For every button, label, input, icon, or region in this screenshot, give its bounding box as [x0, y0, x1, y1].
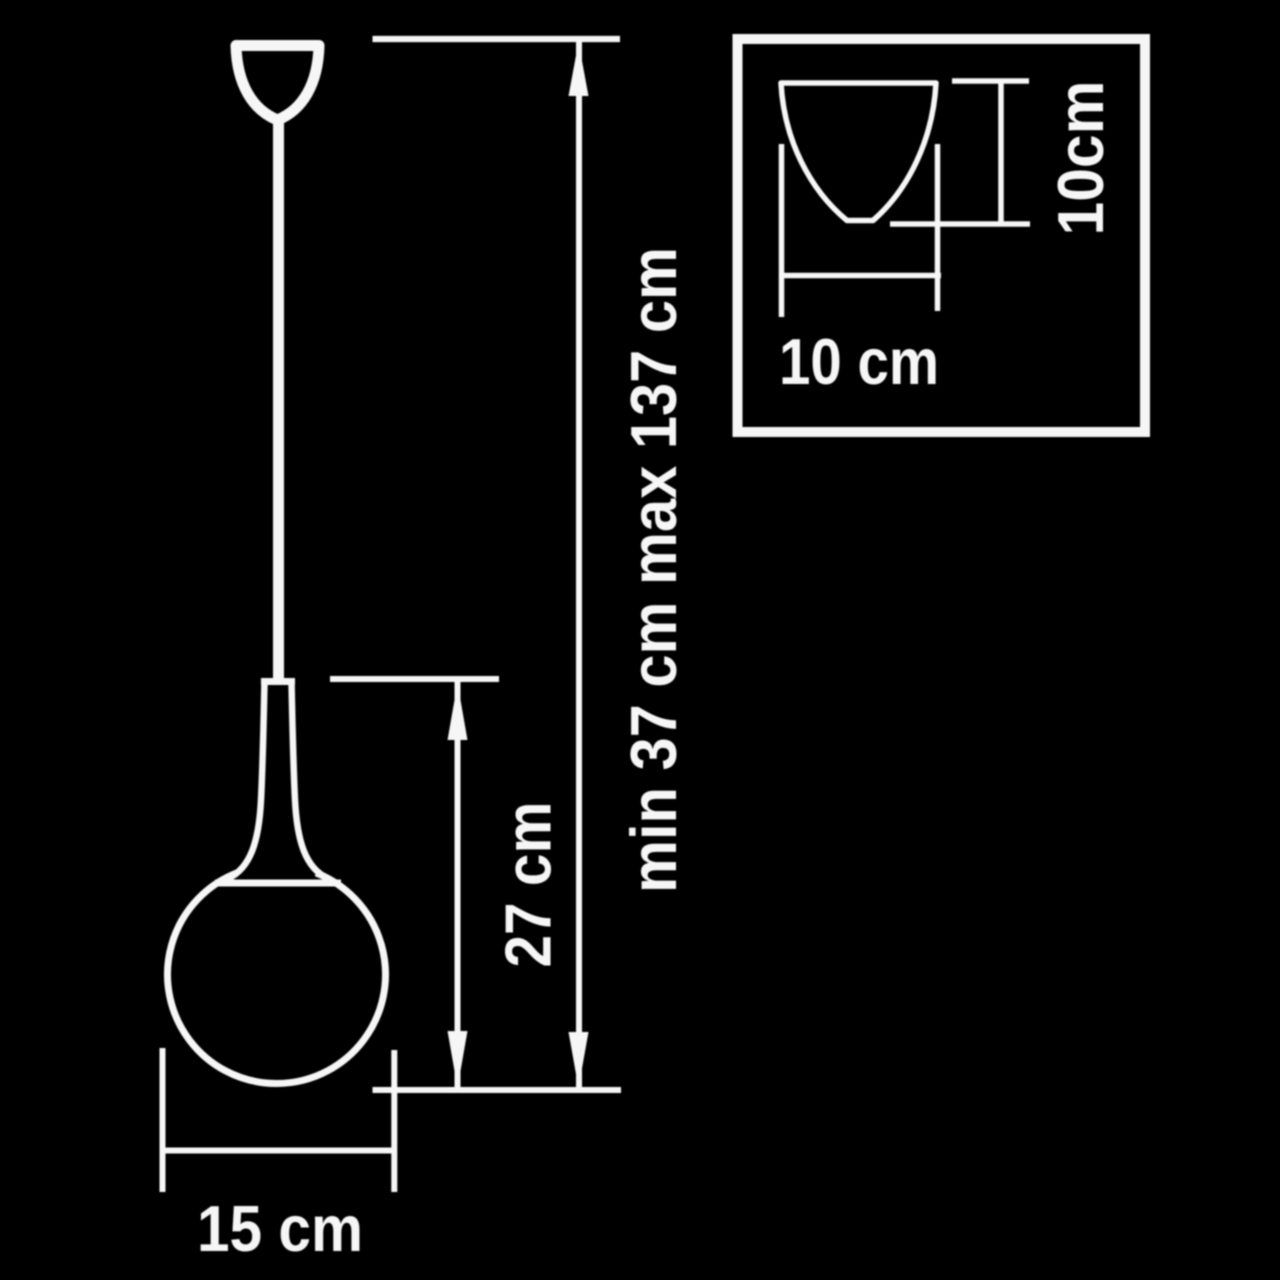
svg-text:10 cm: 10 cm [779, 325, 939, 398]
svg-text:min 37 cm max 137 cm: min 37 cm max 137 cm [617, 247, 690, 893]
svg-text:10cm: 10cm [1044, 81, 1117, 236]
svg-text:15 cm: 15 cm [197, 1192, 363, 1265]
svg-text:27 cm: 27 cm [492, 802, 565, 968]
